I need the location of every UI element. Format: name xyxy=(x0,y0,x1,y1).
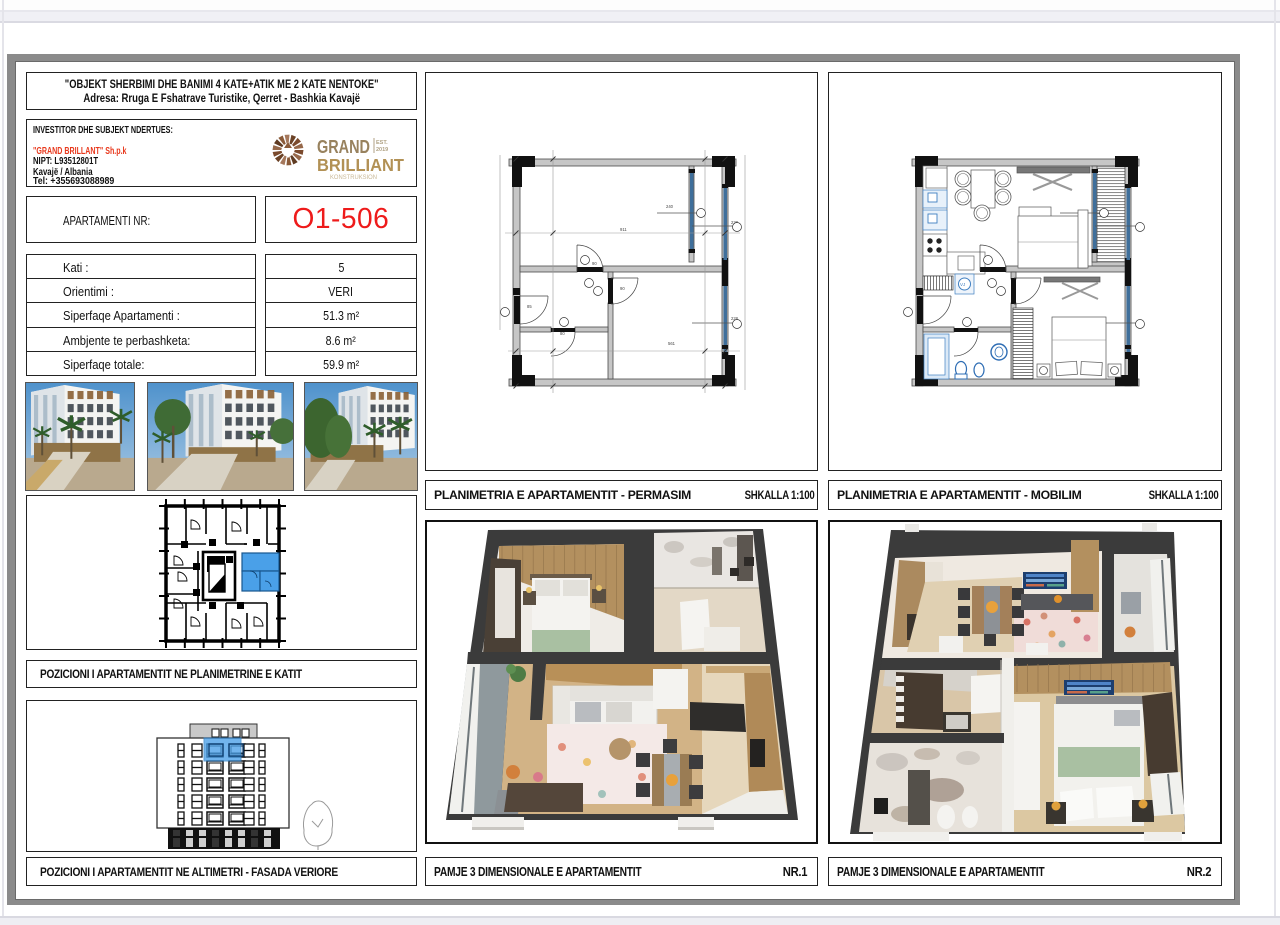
svg-text:80: 80 xyxy=(560,331,565,336)
svg-text:EST.: EST. xyxy=(376,140,388,146)
svg-text:VJ: VJ xyxy=(960,282,965,287)
svg-text:90: 90 xyxy=(592,261,597,266)
svg-text:90: 90 xyxy=(620,286,625,291)
svg-text:911: 911 xyxy=(620,227,627,232)
svg-text:GRAND: GRAND xyxy=(317,137,370,157)
svg-text:KONSTRUKSION: KONSTRUKSION xyxy=(330,175,377,180)
svg-text:BRILLIANT: BRILLIANT xyxy=(317,155,404,175)
svg-text:2019: 2019 xyxy=(376,147,388,153)
svg-text:85: 85 xyxy=(527,304,532,309)
svg-text:561: 561 xyxy=(668,341,676,346)
svg-text:240: 240 xyxy=(666,204,674,209)
